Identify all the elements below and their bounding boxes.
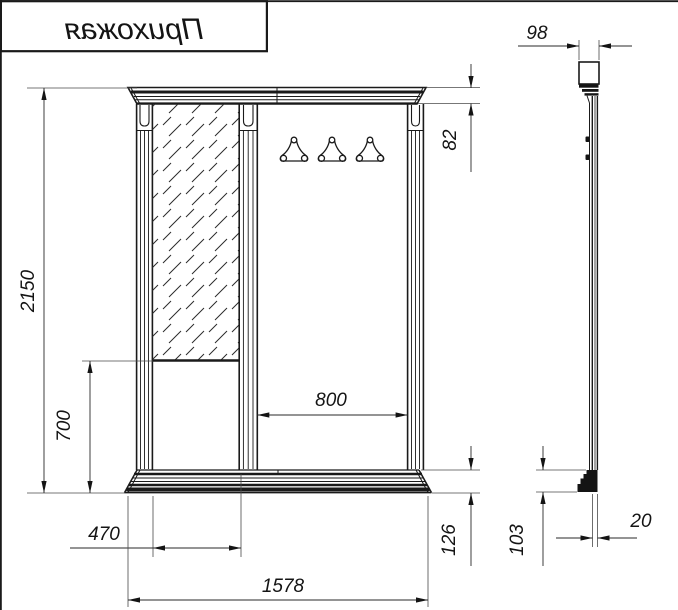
dim-open-section-width: 800 xyxy=(257,390,407,418)
dim-text-2150: 2150 xyxy=(18,269,39,313)
mirror-glass xyxy=(152,104,239,361)
coat-hooks xyxy=(280,137,383,161)
title-block: Прихожая xyxy=(1,1,267,51)
dim-cornice-height: 82 xyxy=(418,64,480,172)
drawing-title: Прихожая xyxy=(64,13,203,46)
dim-side-top-depth: 98 xyxy=(518,23,632,60)
dim-text-82: 82 xyxy=(440,129,461,151)
dim-overall-width: 1578 xyxy=(128,496,428,607)
dim-text-126: 126 xyxy=(439,524,460,556)
dim-mirror-section-width: 470 xyxy=(70,474,241,557)
dim-text-470: 470 xyxy=(88,524,120,545)
dim-text-103: 103 xyxy=(507,524,528,556)
mirror-panel xyxy=(152,104,239,361)
dim-back-panel-thickness: 20 xyxy=(556,494,652,547)
coat-hook xyxy=(280,137,307,161)
drawing-sheet: Прихожая xyxy=(0,0,678,610)
front-view xyxy=(125,88,432,493)
cornice xyxy=(128,88,426,105)
side-crown xyxy=(579,62,599,84)
dim-text-1578: 1578 xyxy=(262,576,305,597)
side-view xyxy=(578,62,600,492)
side-back-panel xyxy=(590,96,598,470)
dim-overall-height: 2150 xyxy=(18,88,137,493)
column-right xyxy=(408,104,424,470)
coat-hook xyxy=(356,137,383,161)
dim-side-plinth-height: 103 xyxy=(507,446,586,566)
dimensions: 2150 700 470 1578 xyxy=(18,23,652,607)
side-hook-profiles xyxy=(586,137,590,161)
side-cornice-profile xyxy=(579,85,599,104)
dim-text-98: 98 xyxy=(526,23,548,44)
dim-plinth-height: 126 xyxy=(421,446,480,566)
dim-text-800: 800 xyxy=(315,390,347,411)
plinth xyxy=(125,470,432,493)
column-middle xyxy=(239,104,257,470)
coat-hook xyxy=(318,137,345,161)
dim-text-700: 700 xyxy=(54,410,75,442)
side-plinth-profile xyxy=(578,470,598,492)
dim-text-20: 20 xyxy=(629,511,652,532)
column-left xyxy=(137,104,153,470)
technical-drawing: Прихожая xyxy=(0,0,678,610)
